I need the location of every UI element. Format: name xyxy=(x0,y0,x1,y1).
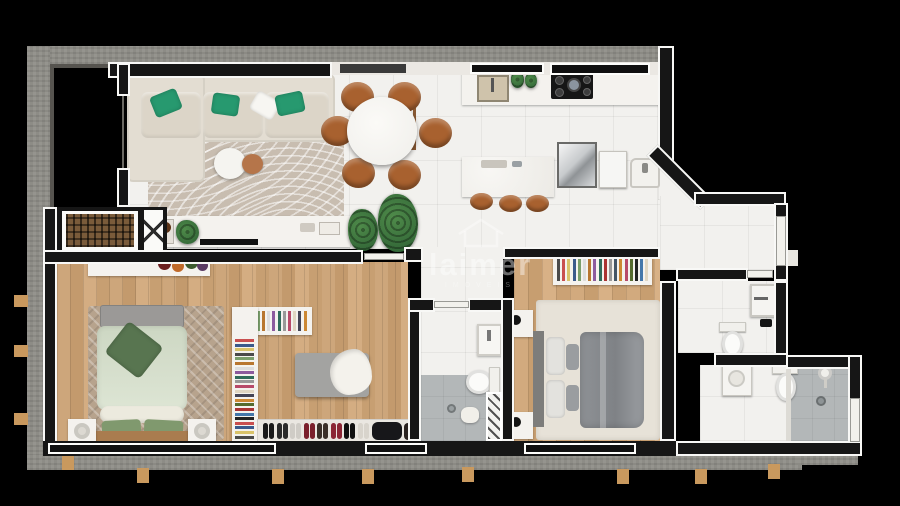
hanging-clothes xyxy=(235,399,254,402)
elevator-symbol xyxy=(144,210,163,252)
hanging-clothes xyxy=(262,311,265,331)
dishwasher xyxy=(599,151,627,188)
kitchen-island xyxy=(462,157,554,197)
hanging-clothes xyxy=(640,257,643,281)
hanging-clothes xyxy=(625,257,628,281)
shoe xyxy=(331,423,336,439)
island-stool xyxy=(499,195,522,212)
shower-head-arm xyxy=(824,379,827,388)
bed2-duvet-fold xyxy=(600,332,606,428)
hanging-clothes xyxy=(283,311,286,331)
table-lamp xyxy=(74,423,90,439)
shaft-grate xyxy=(66,214,134,247)
green-pillow xyxy=(211,92,241,117)
bed-bench xyxy=(100,305,184,328)
shoe xyxy=(350,423,355,439)
formwork-tab xyxy=(14,295,28,307)
hanging-clothes xyxy=(235,413,254,416)
hanging-clothes xyxy=(235,380,254,383)
hanging-clothes xyxy=(235,348,254,351)
top-window xyxy=(340,64,406,73)
cooktop-burner xyxy=(555,76,564,85)
hanging-clothes xyxy=(235,394,254,397)
formwork-tab xyxy=(272,469,284,484)
hanging-clothes xyxy=(235,339,254,342)
shoe xyxy=(277,423,282,439)
shoe xyxy=(310,423,315,439)
hanging-clothes xyxy=(235,403,254,406)
draped-cloth xyxy=(330,349,372,395)
bathroom-tr-bottom-wall xyxy=(714,353,788,367)
shower-drain xyxy=(816,396,826,406)
hanging-clothes xyxy=(235,436,254,439)
console-decor xyxy=(319,222,340,235)
bathroom-tr-door xyxy=(747,270,773,278)
top-window xyxy=(470,63,544,74)
cooktop-pot xyxy=(567,78,581,92)
shower-ledge xyxy=(786,365,791,441)
cooktop-burner xyxy=(555,88,564,97)
hallway-floor xyxy=(660,196,780,270)
hanging-clothes xyxy=(630,257,633,281)
formwork-tab xyxy=(137,468,149,483)
formwork-tab xyxy=(62,456,74,470)
bathroom-br-bottom-wall xyxy=(676,441,862,456)
watermark: laimer IMÓVEIS xyxy=(408,216,553,289)
shoe xyxy=(364,423,369,439)
suite-bath-top-wall xyxy=(408,298,435,312)
table-lamp xyxy=(194,423,210,439)
sink-faucet xyxy=(487,330,491,341)
bag xyxy=(372,422,402,440)
hanging-clothes xyxy=(235,362,254,365)
shoe xyxy=(304,423,309,439)
hanging-clothes xyxy=(235,357,254,360)
suite-top-wall xyxy=(43,250,363,264)
hanging-clothes xyxy=(235,422,254,425)
bottom-window xyxy=(365,443,427,454)
island-decor xyxy=(512,161,522,167)
shoe xyxy=(337,423,342,439)
hanging-clothes xyxy=(288,311,291,331)
hanging-clothes xyxy=(235,367,254,370)
hanging-clothes xyxy=(235,376,254,379)
shoe xyxy=(317,423,322,439)
bedroom2-right-wall xyxy=(660,281,676,441)
balcony-divider-wall xyxy=(117,168,130,207)
shoe xyxy=(269,423,274,439)
formwork-tab xyxy=(462,467,474,482)
bed2-accent-pillow xyxy=(566,385,579,411)
shoe xyxy=(344,423,349,439)
hanging-clothes xyxy=(557,257,560,281)
floor-plant xyxy=(348,209,378,251)
bottom-window xyxy=(524,443,636,454)
dining-table xyxy=(347,97,417,165)
island-board xyxy=(481,160,507,168)
tv xyxy=(200,239,258,245)
hanging-clothes xyxy=(267,311,270,331)
shoe xyxy=(358,423,363,439)
hanging-clothes xyxy=(588,257,591,281)
floor-plan-scene: laimer IMÓVEIS xyxy=(0,0,900,506)
hanging-clothes xyxy=(604,257,607,281)
hanging-clothes xyxy=(567,257,570,281)
entry-step xyxy=(788,250,798,266)
hanging-clothes xyxy=(278,311,281,331)
shoe xyxy=(290,423,295,439)
entry-door xyxy=(776,216,786,266)
balcony-divider-wall xyxy=(117,63,130,96)
hanging-clothes xyxy=(635,257,638,281)
bed2-pillow xyxy=(546,380,565,418)
cooktop-burner xyxy=(583,76,591,84)
formwork-tab xyxy=(695,469,707,484)
left-wall xyxy=(43,207,57,455)
hanging-clothes xyxy=(583,257,586,281)
shoe xyxy=(296,423,301,439)
closet-rack-side xyxy=(232,307,258,443)
hanging-clothes xyxy=(614,257,617,281)
shoe xyxy=(323,423,328,439)
sink-faucet xyxy=(491,78,494,92)
bed2-duvet xyxy=(580,332,644,428)
hanging-clothes xyxy=(235,371,254,374)
hanging-clothes xyxy=(235,344,254,347)
hanging-clothes xyxy=(235,426,254,429)
shower-glass-door xyxy=(486,392,502,441)
bed2-pillow xyxy=(546,337,565,375)
hallway-top-wall xyxy=(694,192,786,206)
hanging-clothes xyxy=(272,311,275,331)
hanging-clothes xyxy=(619,257,622,281)
hanging-clothes xyxy=(235,417,254,420)
tub-faucet xyxy=(642,163,648,173)
shoe xyxy=(283,423,288,439)
bottom-window xyxy=(48,443,276,454)
hanging-clothes xyxy=(593,257,596,281)
hanging-clothes xyxy=(609,257,612,281)
dining-chair xyxy=(419,118,452,148)
shower-fixture xyxy=(461,407,479,423)
hanging-clothes xyxy=(645,257,648,281)
top-window xyxy=(550,63,650,75)
hanging-clothes xyxy=(235,390,254,393)
shower-drain xyxy=(447,404,456,413)
suite-bath-right-wall xyxy=(501,298,514,441)
headboard2 xyxy=(533,331,544,427)
cooktop-burner xyxy=(583,88,591,96)
counter-plant xyxy=(525,73,537,88)
hanging-clothes xyxy=(235,408,254,411)
coffee-table-wood xyxy=(242,154,263,174)
watermark-brand: laimer xyxy=(408,249,553,280)
hanging-clothes xyxy=(235,431,254,434)
island-stool xyxy=(470,193,493,210)
sink-cabinet xyxy=(750,284,776,317)
island-stool xyxy=(526,195,549,212)
fridge xyxy=(557,142,597,188)
hanging-clothes xyxy=(599,257,602,281)
trash-bin xyxy=(760,319,772,327)
shoe xyxy=(263,423,268,439)
suite-bath-left-wall xyxy=(408,298,421,441)
watermark-tagline: IMÓVEIS xyxy=(408,282,553,289)
bed2-accent-pillow xyxy=(566,344,579,370)
console-decor xyxy=(300,223,315,232)
console-plant xyxy=(176,220,199,244)
hanging-clothes xyxy=(235,385,254,388)
sink-faucet xyxy=(754,297,768,300)
balcony-sliding-door xyxy=(108,62,332,78)
hanging-clothes xyxy=(562,257,565,281)
formwork-tab xyxy=(617,469,629,484)
vanity-basin xyxy=(728,370,745,387)
formwork-tab xyxy=(362,469,374,484)
formwork-tab xyxy=(14,345,28,357)
hanging-clothes xyxy=(235,353,254,356)
hanging-clothes xyxy=(293,311,296,331)
hallway-bottom-wall xyxy=(676,268,748,281)
suite-door xyxy=(364,253,404,260)
dining-chair xyxy=(388,160,421,190)
hanging-clothes xyxy=(298,311,301,331)
balcony-floor xyxy=(50,64,124,215)
suite-bath-door xyxy=(434,301,469,308)
kitchen-right-wall xyxy=(658,46,674,162)
formwork-tab xyxy=(14,413,28,425)
hanging-clothes xyxy=(573,257,576,281)
hanging-clothes xyxy=(578,257,581,281)
shower-window xyxy=(850,398,860,442)
watermark-house-icon xyxy=(454,216,508,248)
formwork-tab xyxy=(768,464,780,479)
hanging-clothes xyxy=(304,311,307,331)
